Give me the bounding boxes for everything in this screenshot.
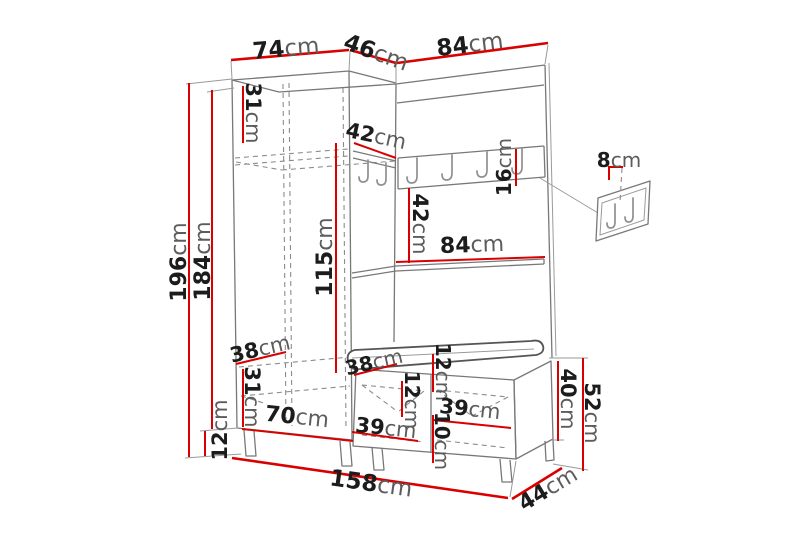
dim-label-bench-depth: 38cm <box>343 344 405 381</box>
dim-label-rail-height: 16cm <box>492 138 516 196</box>
bench-side-face <box>514 361 553 459</box>
coat-hook-icon <box>477 152 487 177</box>
dim-label-drawer-bottom: 10cm <box>430 412 454 470</box>
coat-hook-icon <box>607 204 615 228</box>
dim-label-cushion-height: 12cm <box>431 343 455 401</box>
dim-label-lower-shelf: 38cm <box>227 330 292 367</box>
rail-right-cap <box>544 146 545 177</box>
dim-line-cabinet-width <box>242 429 353 441</box>
leg <box>372 447 384 470</box>
dimension-labels: 74cm 46cm 84cm 196cm 184cm 12cm 31cm 42c… <box>167 28 642 516</box>
dim-label-lower-section: 31cm <box>240 366 264 427</box>
coat-hook-icon <box>407 158 417 183</box>
dim-label-bench-height: 40cm <box>556 368 580 429</box>
leg <box>500 459 512 482</box>
dim-label-cabinet-height: 184cm <box>191 221 216 300</box>
leg <box>244 430 256 456</box>
panel-depth-dashed <box>620 168 622 203</box>
hidden-shelf-front2 <box>235 156 348 165</box>
door-gap-left <box>283 84 286 426</box>
dim-label-cabinet-width: 70cm <box>264 401 330 433</box>
panel-right-edge <box>545 65 552 358</box>
dim-label-top-width-left: 74cm <box>251 33 320 65</box>
dim-label-interior-height: 115cm <box>313 217 338 296</box>
dim-label-corner-rail: 42cm <box>344 118 409 154</box>
dim-label-shelf-width: 84cm <box>440 231 505 258</box>
dim-label-wall-panel: 8cm <box>597 148 641 172</box>
wall-hook-panel-detail <box>540 168 650 241</box>
wardrobe-top-depth-edge <box>349 71 396 83</box>
leg <box>340 441 352 466</box>
dim-label-bench-total-height: 52cm <box>580 382 604 443</box>
dim-label-top-width-right: 84cm <box>435 28 505 62</box>
middle-shelf <box>352 259 544 278</box>
coat-hook-icon <box>442 155 452 180</box>
panel-left-edge <box>394 84 396 342</box>
dim-label-top-depth: 46cm <box>340 29 412 76</box>
coat-hook-icon <box>377 163 386 185</box>
dim-label-leg-height: 12cm <box>208 399 232 460</box>
panel-top-edge <box>396 65 545 84</box>
dim-label-rail-to-shelf: 42cm <box>408 193 432 254</box>
coat-hook-icon <box>625 198 633 222</box>
panel-right-back-edge <box>549 63 556 356</box>
hook-panel-outer <box>596 181 650 241</box>
hidden-shelf-front <box>235 149 348 158</box>
dim-label-total-height: 196cm <box>167 222 192 301</box>
dimension-diagram: 74cm 46cm 84cm 196cm 184cm 12cm 31cm 42c… <box>0 0 800 533</box>
dim-label-total-depth: 44cm <box>514 462 582 516</box>
panel-top-board <box>397 85 544 103</box>
dim-label-total-width: 158cm <box>328 465 414 502</box>
drawer-dashed <box>362 385 398 412</box>
door-gap-right <box>289 83 292 426</box>
hidden-shelf-side <box>236 162 282 170</box>
rail-bottom <box>398 177 545 189</box>
shelf-bottom <box>352 264 544 278</box>
dim-label-drawer-width-left: 39cm <box>354 413 417 443</box>
dim-label-upper-shelf: 31cm <box>241 82 265 143</box>
diagram-canvas: 74cm 46cm 84cm 196cm 184cm 12cm 31cm 42c… <box>0 0 800 533</box>
hidden-shelf-back <box>282 161 395 170</box>
